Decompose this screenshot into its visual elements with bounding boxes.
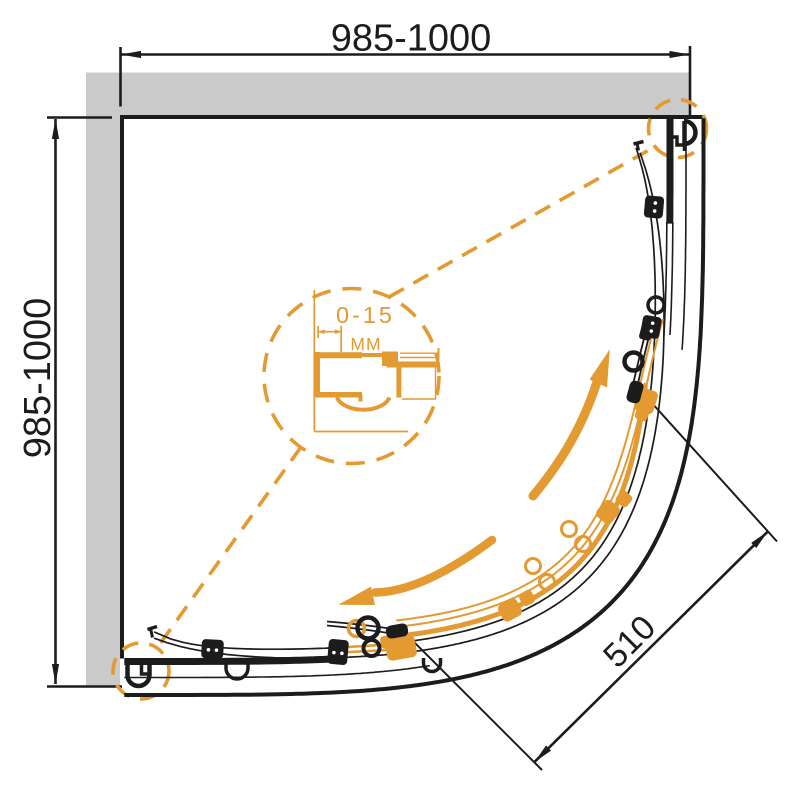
svg-text:MM: MM xyxy=(350,334,381,354)
svg-text:985-1000: 985-1000 xyxy=(331,18,492,60)
svg-text:0-15: 0-15 xyxy=(336,302,395,328)
svg-text:985-1000: 985-1000 xyxy=(17,298,59,459)
